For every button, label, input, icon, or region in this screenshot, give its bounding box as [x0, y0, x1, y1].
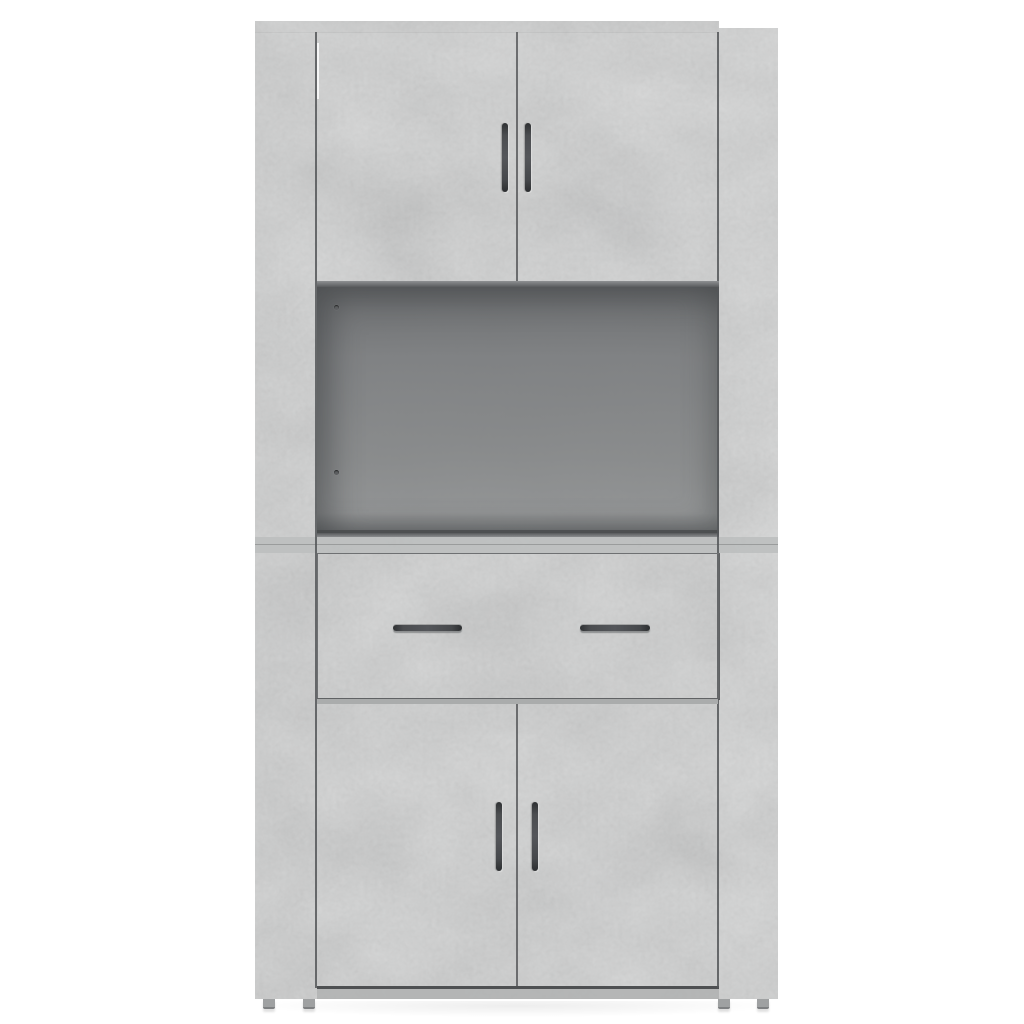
- top-left-door-handle: [502, 123, 508, 192]
- top-doors-split-line: [516, 32, 518, 283]
- cabinet-foot: [303, 999, 315, 1009]
- top-right-door-handle: [525, 123, 531, 192]
- drawer-handle-left: [393, 625, 462, 631]
- cabinet-foot: [757, 999, 769, 1009]
- top-doors-bottom-shadow: [317, 281, 719, 287]
- floor-shadow: [258, 1001, 774, 1017]
- shelf-pin-hole: [334, 470, 339, 475]
- right-panel-top-step: [719, 21, 779, 28]
- bottom-left-door-handle: [496, 802, 502, 871]
- bottom-right-door-handle: [532, 802, 538, 871]
- left-panel-seam: [315, 32, 317, 988]
- product-photo: [0, 0, 1024, 1024]
- open-compartment: [317, 287, 719, 533]
- plinth: [317, 989, 719, 999]
- divider-board: [255, 537, 778, 553]
- cabinet-foot: [263, 999, 275, 1009]
- bottom-doors-split-line: [516, 703, 518, 986]
- highboard-cabinet: [255, 21, 778, 999]
- shelf-pin-hole: [334, 305, 339, 310]
- drawer: [317, 553, 720, 700]
- drawer-handle-right: [580, 625, 650, 631]
- drawer-bottom-gap: [317, 698, 718, 704]
- right-panel-seam: [717, 32, 719, 988]
- cabinet-foot: [718, 999, 730, 1009]
- seam-highlight: [317, 43, 319, 99]
